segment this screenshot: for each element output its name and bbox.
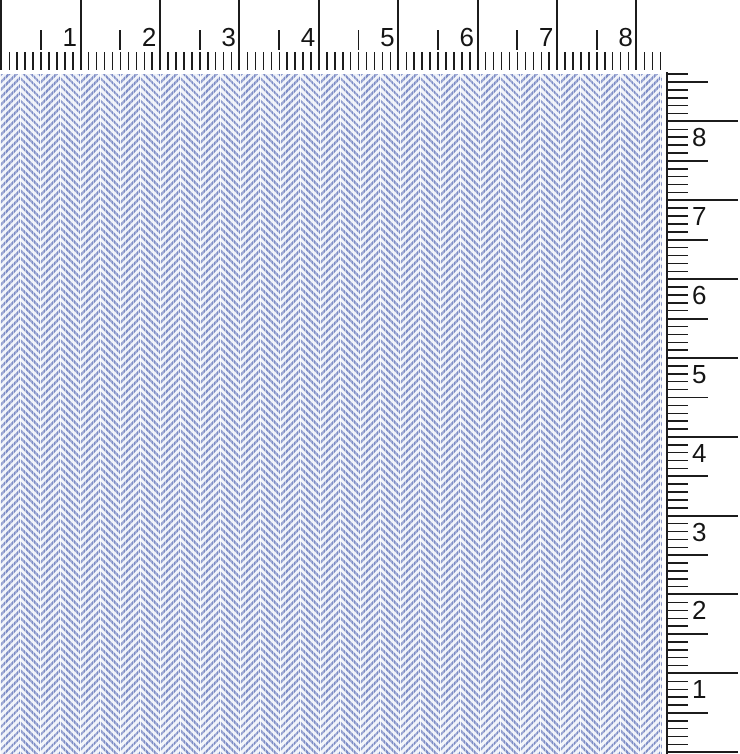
mm-tick — [548, 52, 550, 70]
fabric-column — [380, 74, 400, 754]
mm-tick — [667, 184, 688, 186]
mm-tick — [667, 176, 688, 178]
mm-tick — [48, 52, 50, 70]
mm-tick — [667, 720, 688, 722]
mm-tick — [667, 547, 688, 549]
cm-tick — [397, 0, 399, 70]
mm-tick — [421, 52, 423, 70]
mm-tick — [667, 444, 688, 446]
half-cm-tick — [358, 30, 360, 50]
mm-tick — [667, 326, 688, 328]
mm-tick — [572, 52, 574, 70]
mm-tick — [485, 52, 487, 70]
mm-tick — [151, 52, 153, 70]
mm-tick — [453, 52, 455, 70]
top-ruler-number-5: 5 — [361, 24, 395, 50]
mm-tick — [667, 523, 688, 525]
mm-tick — [667, 136, 688, 138]
right-ruler-number-5: 5 — [692, 361, 706, 387]
fabric-column — [200, 74, 220, 754]
mm-tick — [667, 483, 688, 485]
top-ruler-number-3: 3 — [202, 24, 236, 50]
mm-tick — [667, 342, 688, 344]
mm-tick — [667, 539, 688, 541]
fabric-swatch — [0, 74, 662, 754]
mm-tick — [207, 52, 209, 70]
cm-tick — [318, 0, 320, 70]
mm-tick — [667, 499, 688, 501]
top-ruler-number-4: 4 — [281, 24, 315, 50]
cm-tick — [667, 672, 738, 674]
mm-tick — [136, 52, 138, 70]
fabric-column — [160, 74, 180, 754]
mm-tick — [667, 349, 688, 351]
cm-tick — [159, 0, 161, 70]
fabric-column — [440, 74, 460, 754]
mm-tick — [667, 681, 688, 683]
mm-tick — [1, 52, 3, 70]
mm-tick — [667, 286, 688, 288]
fabric-column — [180, 74, 200, 754]
mm-tick — [16, 52, 18, 70]
fabric-column — [260, 74, 280, 754]
mm-tick — [667, 215, 688, 217]
mm-tick — [667, 223, 688, 225]
cm-tick — [667, 751, 738, 753]
mm-tick — [477, 52, 479, 70]
mm-tick — [667, 192, 688, 194]
fabric-column — [520, 74, 540, 754]
ruler-baseline — [666, 72, 668, 754]
fabric-column — [320, 74, 340, 754]
mm-tick — [667, 578, 688, 580]
mm-tick — [588, 52, 590, 70]
cm-tick — [238, 0, 240, 70]
mm-tick — [128, 52, 130, 70]
mm-tick — [667, 460, 688, 462]
fabric-column — [640, 74, 660, 754]
fabric-column — [400, 74, 420, 754]
fabric-column — [20, 74, 40, 754]
mm-tick — [374, 52, 376, 70]
mm-tick — [279, 52, 281, 70]
fabric-column — [300, 74, 320, 754]
cm-tick — [80, 0, 82, 70]
mm-tick — [517, 52, 519, 70]
mm-tick — [667, 113, 688, 115]
top-ruler-number-1: 1 — [43, 24, 77, 50]
mm-tick — [667, 641, 688, 643]
mm-tick — [96, 52, 98, 70]
mm-tick — [564, 52, 566, 70]
mm-tick — [660, 52, 662, 70]
mm-tick — [667, 89, 688, 91]
mm-tick — [667, 602, 688, 604]
half-cm-tick — [667, 239, 708, 241]
mm-tick — [64, 52, 66, 70]
mm-tick — [302, 52, 304, 70]
mm-tick — [326, 52, 328, 70]
half-cm-tick — [119, 30, 121, 50]
fabric-column — [540, 74, 560, 754]
fabric-column — [120, 74, 140, 754]
top-ruler-number-6: 6 — [440, 24, 474, 50]
fabric-column — [100, 74, 120, 754]
mm-tick — [667, 144, 688, 146]
mm-tick — [667, 389, 688, 391]
mm-tick — [604, 52, 606, 70]
mm-tick — [636, 52, 638, 70]
mm-tick — [667, 413, 688, 415]
mm-tick — [667, 452, 688, 454]
right-ruler-number-3: 3 — [692, 519, 706, 545]
fabric-column — [480, 74, 500, 754]
mm-tick — [667, 507, 688, 509]
mm-tick — [667, 420, 688, 422]
mm-tick — [667, 129, 688, 131]
cm-tick — [667, 199, 738, 201]
mm-tick — [667, 468, 688, 470]
mm-tick — [247, 52, 249, 70]
mm-tick — [667, 294, 688, 296]
mm-tick — [80, 52, 82, 70]
mm-tick — [413, 52, 415, 70]
half-cm-tick — [40, 30, 42, 50]
mm-tick — [533, 52, 535, 70]
mm-tick — [469, 52, 471, 70]
mm-tick — [120, 52, 122, 70]
mm-tick — [382, 52, 384, 70]
mm-tick — [667, 334, 688, 336]
mm-tick — [667, 744, 688, 746]
mm-tick — [9, 52, 11, 70]
half-cm-tick — [667, 81, 708, 83]
fabric-column — [140, 74, 160, 754]
fabric-column — [360, 74, 380, 754]
mm-tick — [667, 105, 688, 107]
mm-tick — [239, 52, 241, 70]
mm-tick — [667, 247, 688, 249]
mm-tick — [652, 52, 654, 70]
mm-tick — [255, 52, 257, 70]
cm-tick — [667, 278, 738, 280]
mm-tick — [406, 52, 408, 70]
mm-tick — [667, 491, 688, 493]
mm-tick — [580, 52, 582, 70]
mm-tick — [104, 52, 106, 70]
half-cm-tick — [667, 712, 708, 714]
mm-tick — [667, 657, 688, 659]
mm-tick — [667, 263, 688, 265]
mm-tick — [366, 52, 368, 70]
half-cm-tick — [437, 30, 439, 50]
mm-tick — [525, 52, 527, 70]
mm-tick — [223, 52, 225, 70]
mm-tick — [667, 231, 688, 233]
mm-tick — [167, 52, 169, 70]
fabric-column — [60, 74, 80, 754]
mm-tick — [667, 562, 688, 564]
right-ruler-number-6: 6 — [692, 282, 706, 308]
mm-tick — [263, 52, 265, 70]
mm-tick — [40, 52, 42, 70]
half-cm-tick — [667, 397, 708, 399]
mm-tick — [183, 52, 185, 70]
half-cm-tick — [516, 30, 518, 50]
right-ruler-number-4: 4 — [692, 440, 706, 466]
fabric-column — [500, 74, 520, 754]
mm-tick — [112, 52, 114, 70]
mm-tick — [667, 310, 688, 312]
cm-tick — [635, 0, 637, 70]
mm-tick — [398, 52, 400, 70]
mm-tick — [667, 381, 688, 383]
mm-tick — [390, 52, 392, 70]
mm-tick — [667, 373, 688, 375]
mm-tick — [144, 52, 146, 70]
half-cm-tick — [667, 318, 708, 320]
mm-tick — [72, 52, 74, 70]
mm-tick — [667, 610, 688, 612]
fabric-column — [340, 74, 360, 754]
half-cm-tick — [667, 633, 708, 635]
mm-tick — [667, 649, 688, 651]
half-cm-tick — [278, 30, 280, 50]
top-ruler-number-8: 8 — [599, 24, 633, 50]
mm-tick — [667, 736, 688, 738]
cm-tick — [0, 0, 2, 70]
mm-tick — [24, 52, 26, 70]
fabric-column — [460, 74, 480, 754]
half-cm-tick — [667, 160, 708, 162]
mm-tick — [667, 665, 688, 667]
mm-tick — [628, 52, 630, 70]
mm-tick — [215, 52, 217, 70]
mm-tick — [509, 52, 511, 70]
mm-tick — [175, 52, 177, 70]
mm-tick — [612, 52, 614, 70]
mm-tick — [667, 302, 688, 304]
fabric-column — [420, 74, 440, 754]
fabric-column — [560, 74, 580, 754]
mm-tick — [667, 73, 688, 75]
mm-tick — [541, 52, 543, 70]
fabric-column — [220, 74, 240, 754]
right-ruler-number-1: 1 — [692, 676, 706, 702]
right-ruler-number-8: 8 — [692, 124, 706, 150]
mm-tick — [318, 52, 320, 70]
fabric-column — [80, 74, 100, 754]
mm-tick — [667, 689, 688, 691]
mm-tick — [199, 52, 201, 70]
mm-tick — [358, 52, 360, 70]
top-ruler-number-7: 7 — [519, 24, 553, 50]
mm-tick — [294, 52, 296, 70]
half-cm-tick — [199, 30, 201, 50]
fabric-column — [0, 74, 20, 754]
mm-tick — [667, 625, 688, 627]
mm-tick — [271, 52, 273, 70]
mm-tick — [556, 52, 558, 70]
fabric-column — [240, 74, 260, 754]
fabric-column — [580, 74, 600, 754]
mm-tick — [461, 52, 463, 70]
mm-tick — [88, 52, 90, 70]
mm-tick — [620, 52, 622, 70]
cm-tick — [667, 515, 738, 517]
mm-tick — [667, 696, 688, 698]
mm-tick — [667, 168, 688, 170]
mm-tick — [667, 97, 688, 99]
fabric-column — [280, 74, 300, 754]
half-cm-tick — [596, 30, 598, 50]
mm-tick — [56, 52, 58, 70]
cm-tick — [667, 593, 738, 595]
mm-tick — [231, 52, 233, 70]
mm-tick — [667, 531, 688, 533]
right-ruler-number-2: 2 — [692, 597, 706, 623]
mm-tick — [310, 52, 312, 70]
half-cm-tick — [667, 554, 708, 556]
fabric-column — [620, 74, 640, 754]
mm-tick — [667, 428, 688, 430]
mm-tick — [286, 52, 288, 70]
cm-tick — [667, 436, 738, 438]
mm-tick — [667, 586, 688, 588]
mm-tick — [667, 405, 688, 407]
mm-tick — [445, 52, 447, 70]
mm-tick — [667, 365, 688, 367]
mm-tick — [667, 704, 688, 706]
mm-tick — [429, 52, 431, 70]
mm-tick — [667, 207, 688, 209]
mm-tick — [667, 271, 688, 273]
mm-tick — [334, 52, 336, 70]
mm-tick — [667, 255, 688, 257]
fabric-column — [600, 74, 620, 754]
cm-tick — [477, 0, 479, 70]
mm-tick — [596, 52, 598, 70]
cm-tick — [667, 357, 738, 359]
fabric-column — [40, 74, 60, 754]
mm-tick — [437, 52, 439, 70]
right-ruler-number-7: 7 — [692, 203, 706, 229]
cm-tick — [667, 120, 738, 122]
mm-tick — [667, 152, 688, 154]
mm-tick — [350, 52, 352, 70]
fabric-scan: 12345678 12345678 — [0, 0, 740, 754]
mm-tick — [667, 618, 688, 620]
mm-tick — [644, 52, 646, 70]
mm-tick — [667, 728, 688, 730]
top-ruler-number-2: 2 — [122, 24, 156, 50]
mm-tick — [32, 52, 34, 70]
mm-tick — [191, 52, 193, 70]
mm-tick — [342, 52, 344, 70]
half-cm-tick — [667, 475, 708, 477]
cm-tick — [556, 0, 558, 70]
fabric-column — [660, 74, 662, 754]
mm-tick — [159, 52, 161, 70]
mm-tick — [667, 570, 688, 572]
mm-tick — [493, 52, 495, 70]
mm-tick — [501, 52, 503, 70]
